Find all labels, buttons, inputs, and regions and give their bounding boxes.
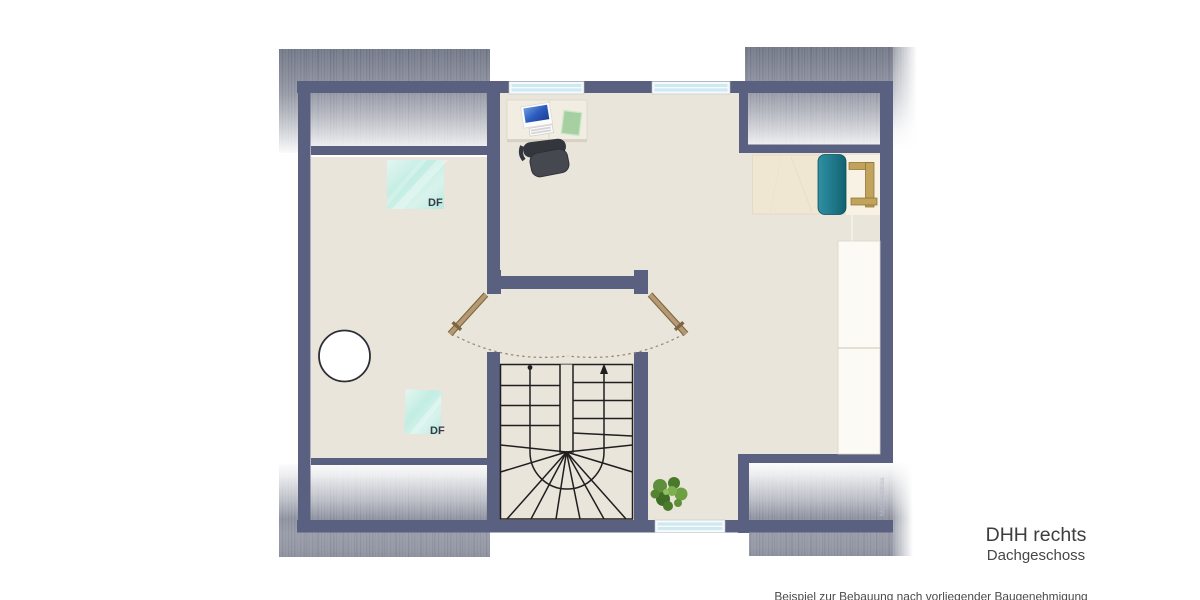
svg-text:DF: DF: [430, 425, 445, 437]
svg-text:Beispiel zur Bebauung nach vor: Beispiel zur Bebauung nach vorliegender …: [774, 590, 1087, 600]
svg-text:McGrundriss: McGrundriss: [879, 477, 886, 516]
svg-text:DHH rechts: DHH rechts: [986, 524, 1087, 546]
svg-text:DF: DF: [428, 197, 443, 209]
svg-text:Dachgeschoss: Dachgeschoss: [987, 547, 1085, 564]
